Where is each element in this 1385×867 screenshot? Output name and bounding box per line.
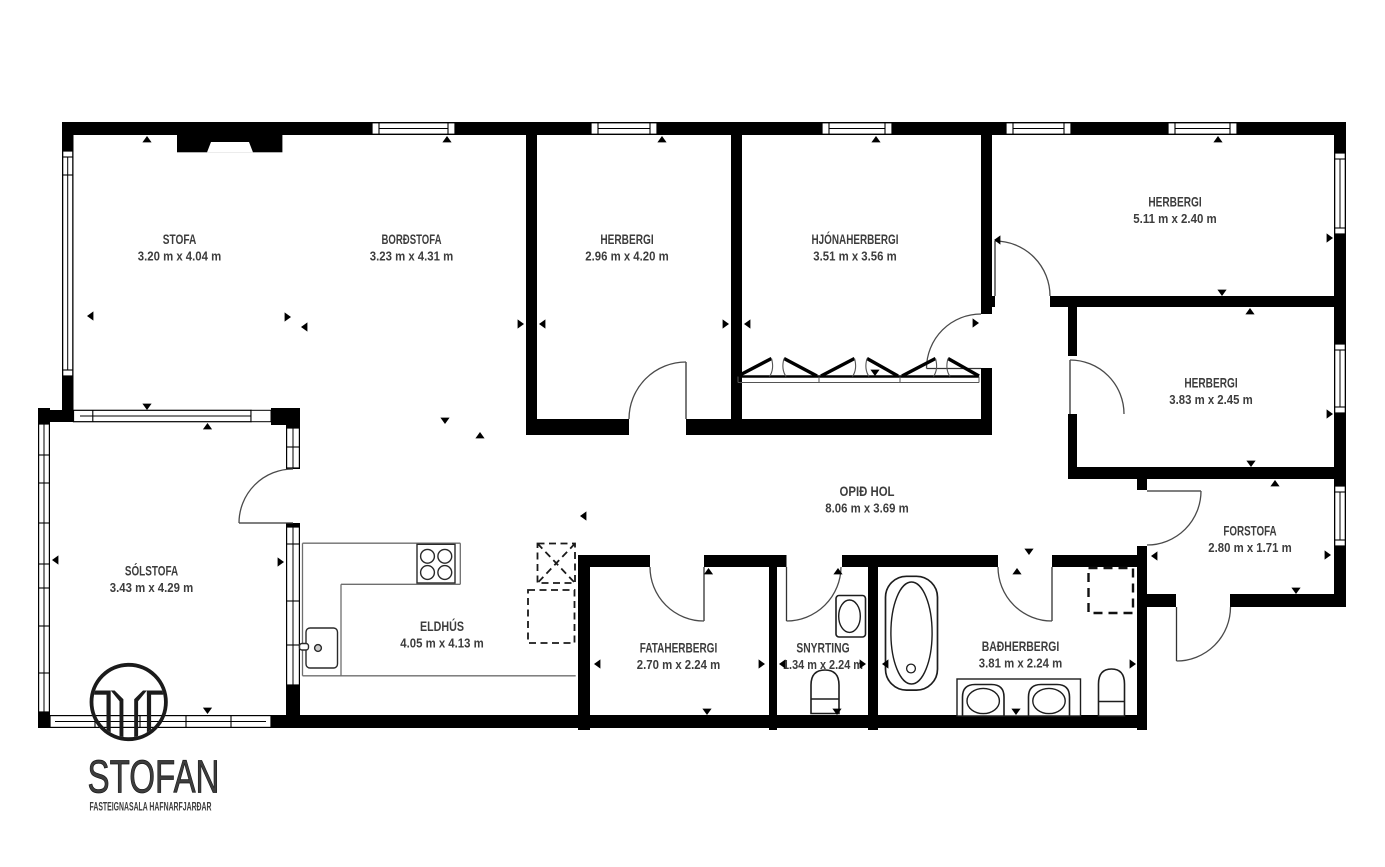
svg-text:4.05 m x 4.13 m: 4.05 m x 4.13 m	[400, 635, 483, 650]
svg-text:3.83 m x 2.45 m: 3.83 m x 2.45 m	[1169, 392, 1252, 407]
svg-text:FASTEIGNASALA HAFNARFJARÐAR: FASTEIGNASALA HAFNARFJARÐAR	[90, 800, 212, 814]
svg-text:2.80 m x 1.71 m: 2.80 m x 1.71 m	[1208, 540, 1291, 555]
svg-text:3.43 m x 4.29 m: 3.43 m x 4.29 m	[110, 580, 193, 595]
svg-text:3.51 m x 3.56 m: 3.51 m x 3.56 m	[813, 248, 896, 263]
svg-text:FATAHERBERGI: FATAHERBERGI	[640, 640, 718, 656]
svg-text:BAÐHERBERGI: BAÐHERBERGI	[982, 638, 1060, 654]
svg-text:STOFAN: STOFAN	[88, 751, 220, 803]
svg-text:HERBERGI: HERBERGI	[1184, 375, 1237, 391]
svg-text:ELDHÚS: ELDHÚS	[420, 617, 464, 634]
svg-text:2.96 m x 4.20 m: 2.96 m x 4.20 m	[585, 248, 668, 263]
svg-text:HERBERGI: HERBERGI	[600, 231, 653, 247]
svg-text:3.23 m x 4.31 m: 3.23 m x 4.31 m	[370, 248, 453, 263]
svg-text:3.81 m x 2.24 m: 3.81 m x 2.24 m	[979, 655, 1062, 670]
svg-text:STOFA: STOFA	[163, 231, 197, 247]
svg-text:5.11 m x 2.40 m: 5.11 m x 2.40 m	[1133, 211, 1216, 226]
svg-text:SÓLSTOFA: SÓLSTOFA	[125, 562, 178, 579]
svg-text:8.06 m x 3.69 m: 8.06 m x 3.69 m	[825, 500, 908, 515]
svg-text:HJÓNAHERBERGI: HJÓNAHERBERGI	[812, 230, 899, 247]
svg-text:OPIÐ HOL: OPIÐ HOL	[840, 483, 895, 499]
svg-text:SNYRTING: SNYRTING	[796, 640, 849, 656]
svg-text:3.20 m x 4.04 m: 3.20 m x 4.04 m	[138, 248, 221, 263]
svg-text:2.70 m x 2.24 m: 2.70 m x 2.24 m	[637, 657, 720, 672]
svg-text:1.34 m x 2.24 m: 1.34 m x 2.24 m	[783, 657, 863, 672]
svg-text:HERBERGI: HERBERGI	[1148, 194, 1201, 210]
svg-text:BORÐSTOFA: BORÐSTOFA	[382, 231, 442, 247]
svg-text:FORSTOFA: FORSTOFA	[1223, 523, 1276, 539]
